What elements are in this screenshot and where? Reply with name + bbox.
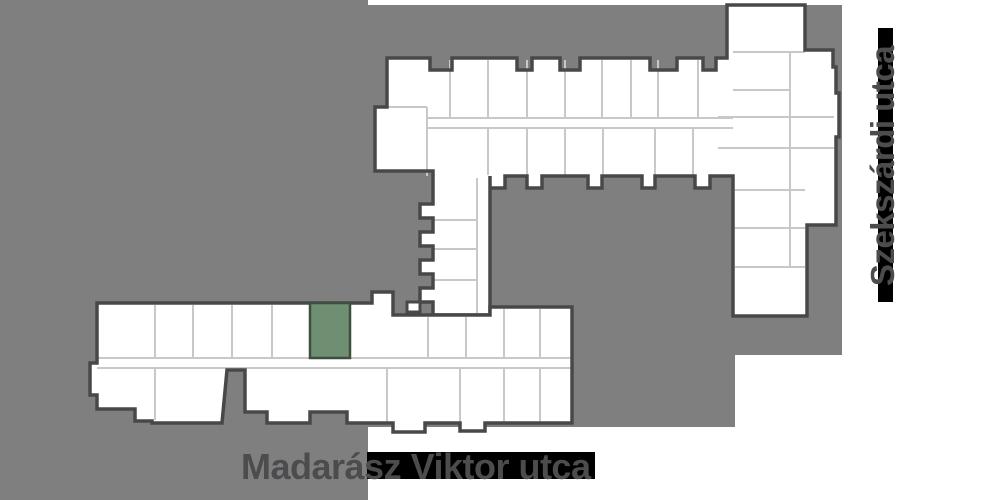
street-label-szekszardi: Szekszárdi utca — [866, 27, 899, 305]
lower-building — [90, 292, 572, 432]
site-plan: Madarász Viktor utca Szekszárdi utca — [0, 0, 1000, 500]
floor-plan-svg — [0, 0, 1000, 500]
highlighted-unit[interactable] — [310, 303, 350, 358]
street-label-madarasz: Madarász Viktor utca — [241, 449, 590, 485]
lower-building-balcony-notch — [407, 302, 420, 312]
